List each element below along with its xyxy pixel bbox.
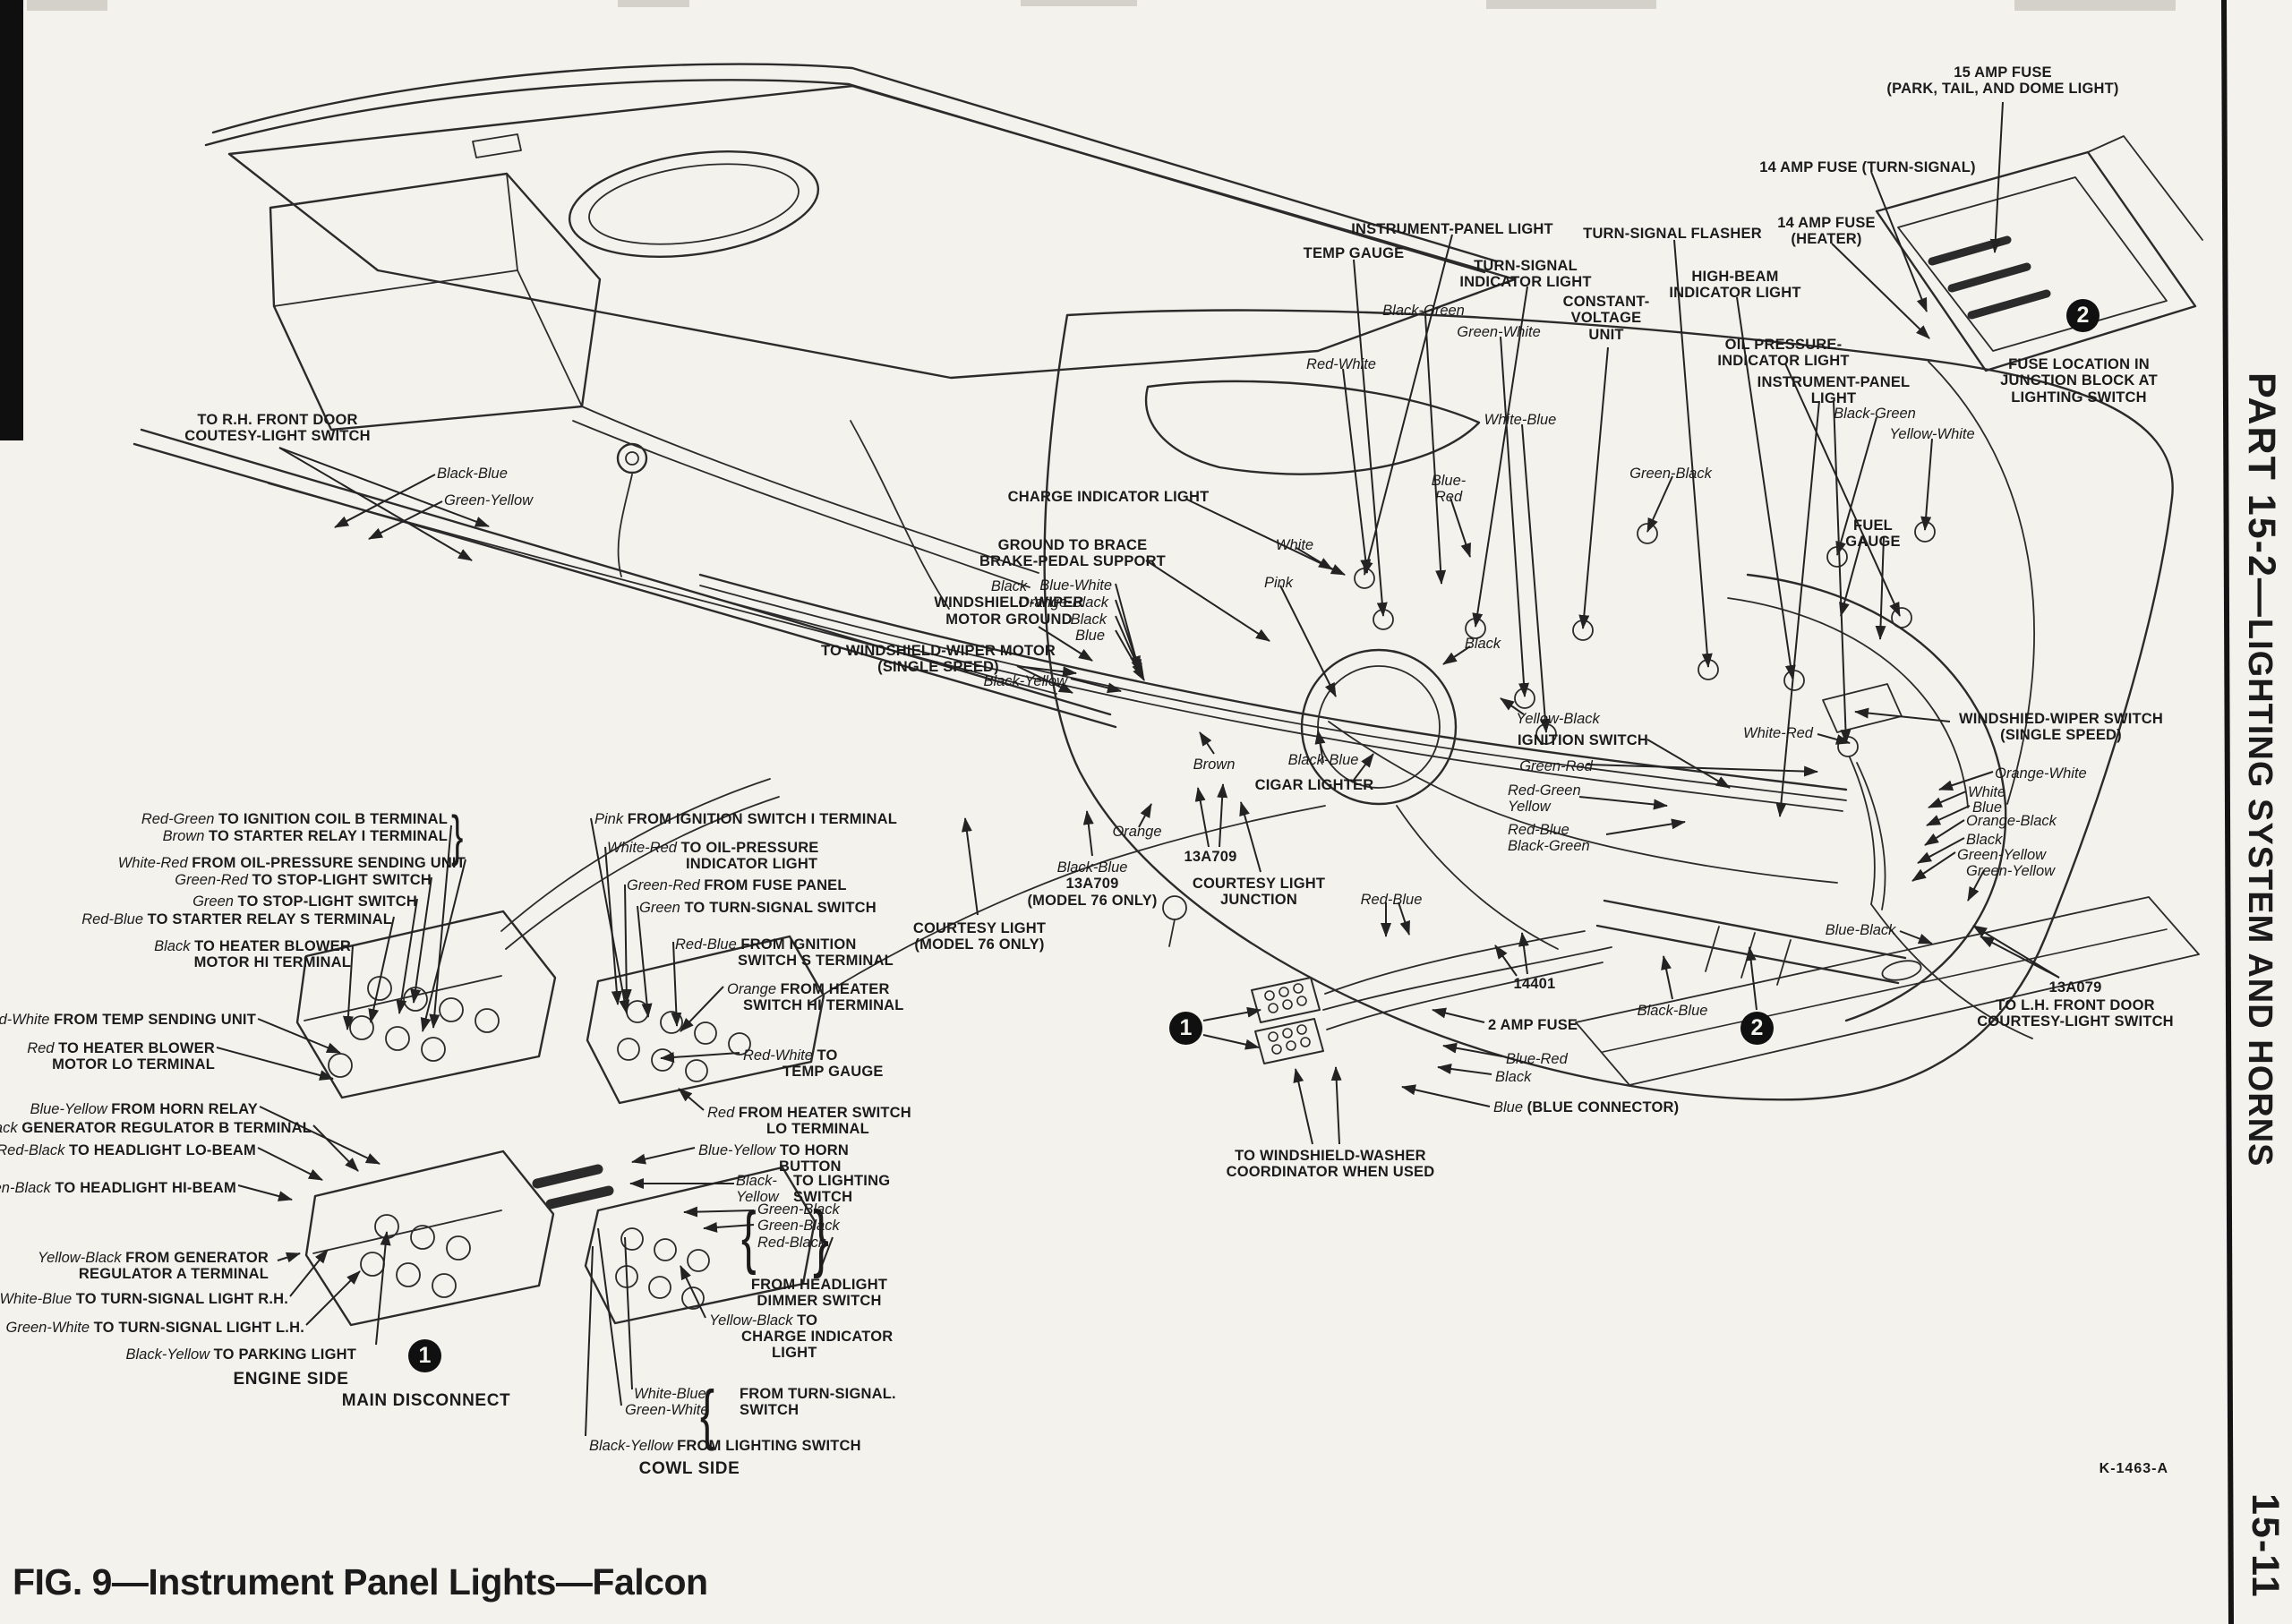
cowl-yellow-black-charge-2: CHARGE INDICATOR xyxy=(741,1329,893,1345)
wire-yellow-black-c: Yellow-Black xyxy=(1516,711,1600,727)
callout-badge-1: 1 xyxy=(1169,1012,1202,1045)
wire-black-blue-b: Black-Blue xyxy=(1638,1003,1708,1019)
cowl-blue-yellow-horn: Blue-Yellow TO HORN xyxy=(698,1142,849,1158)
engine-side-heading: ENGINE SIDE xyxy=(233,1370,348,1389)
turn-signal-indicator-light: TURN-SIGNALINDICATOR LIGHT xyxy=(1459,258,1591,291)
wire-yellow-white: Yellow-White xyxy=(1889,426,1974,442)
wire-green-yellow-left: Green-Yellow xyxy=(444,492,533,509)
part-13a709: 13A709 xyxy=(1184,849,1237,865)
wire-green-red-c: Green-Red xyxy=(1519,758,1593,774)
eng-black-heater-hi: Black TO HEATER BLOWERMOTOR HI TERMINAL xyxy=(154,938,351,971)
eng-red-black-lo-beam: Red-Black TO HEADLIGHT LO-BEAM xyxy=(0,1142,256,1158)
cowl-white-red-oil: White-Red TO OIL-PRESSURE xyxy=(607,840,819,856)
wire-green-yellow-r1: Green-Yellow xyxy=(1957,847,2046,863)
wire-red-blue-c: Red-Blue xyxy=(1361,892,1423,908)
wire-green-black-1: Green-Black xyxy=(1629,466,1712,482)
wire-blue-c1: Blue xyxy=(1075,628,1105,644)
ground-to-brace: GROUND TO BRACEBRAKE-PEDAL SUPPORT xyxy=(979,537,1166,570)
oil-pressure-indicator-light: OIL PRESSURE-INDICATOR LIGHT xyxy=(1717,337,1849,370)
fuel-gauge: FUELGAUGE xyxy=(1845,517,1901,551)
from-turn-signal-switch: FROM TURN-SIGNAL. xyxy=(740,1386,896,1402)
main-disconnect-heading: MAIN DISCONNECT xyxy=(342,1391,510,1410)
lh-front-door-courtesy-switch: TO L.H. FRONT DOORCOURTESY-LIGHT SWITCH xyxy=(1977,997,2174,1030)
from-turn-signal-switch-2: SWITCH xyxy=(740,1402,799,1418)
wire-green-white-1: Green-White xyxy=(1457,324,1541,340)
model-76-block: Black-Blue13A709(MODEL 76 ONLY) xyxy=(1027,859,1157,909)
label-layer: 15 AMP FUSE(PARK, TAIL, AND DOME LIGHT)1… xyxy=(0,0,2292,1624)
eng-black-gen-reg-b: Black GENERATOR REGULATOR B TERMINAL xyxy=(0,1120,312,1136)
eng-blue-yellow-horn-relay: Blue-Yellow FROM HORN RELAY xyxy=(30,1101,258,1117)
callout-badge-2: 2 xyxy=(2066,299,2100,332)
ignition-switch: IGNITION SWITCH xyxy=(1518,732,1648,748)
wire-orange-black-r: Orange-Black xyxy=(1966,813,2057,829)
eng-red-white-temp-sending: Red-White FROM TEMP SENDING UNIT xyxy=(0,1012,256,1028)
cowl-red-heater-lo-2: LO TERMINAL xyxy=(766,1121,869,1137)
washer-coordinator: TO WINDSHIELD-WASHERCOORDINATOR WHEN USE… xyxy=(1227,1148,1435,1181)
cowl-orange-heater-hi-2: SWITCH HI TERMINAL xyxy=(743,997,904,1013)
manual-page: 15 AMP FUSE(PARK, TAIL, AND DOME LIGHT)1… xyxy=(0,0,2292,1624)
wire-red-green-yellow: Red-GreenYellow xyxy=(1508,782,1581,816)
wire-black-c2: Black xyxy=(1465,636,1501,652)
wire-blue-black-r: Blue-Black xyxy=(1826,922,1896,938)
wire-black-blue-left: Black-Blue xyxy=(437,466,508,482)
callout-badge-1: 1 xyxy=(408,1339,441,1372)
cowl-red-blue-ignition-s: Red-Blue FROM IGNITION xyxy=(675,936,856,953)
wire-blue-red-1: Blue-Red xyxy=(1432,473,1467,506)
eng-green-black-hi-beam: Green-Black TO HEADLIGHT HI-BEAM xyxy=(0,1180,236,1196)
wire-black-blue-c: Black-Blue xyxy=(1288,752,1359,768)
high-beam-indicator-light: HIGH-BEAMINDICATOR LIGHT xyxy=(1669,269,1800,302)
cowl-black-yellow-from-lighting: Black-Yellow FROM LIGHTING SWITCH xyxy=(589,1438,861,1454)
wire-red-white-1: Red-White xyxy=(1306,356,1376,372)
wire-red-blue-black-green: Red-BlueBlack-Green xyxy=(1508,822,1590,855)
cowl-white-blue-ts: White-Blue xyxy=(634,1386,706,1402)
courtesy-light-junction: COURTESY LIGHTJUNCTION xyxy=(1193,876,1325,909)
fuse-15-amp: 15 AMP FUSE(PARK, TAIL, AND DOME LIGHT) xyxy=(1886,64,2118,98)
eng-green-white-turn-lh: Green-White TO TURN-SIGNAL LIGHT L.H. xyxy=(5,1320,304,1336)
wire-black-b: Black xyxy=(1495,1069,1531,1085)
wire-pink-1: Pink xyxy=(1264,575,1293,591)
wire-blue-connector: Blue (BLUE CONNECTOR) xyxy=(1493,1099,1679,1115)
instrument-panel-light-1: INSTRUMENT-PANEL LIGHT xyxy=(1351,221,1553,237)
wire-brown: Brown xyxy=(1193,756,1236,773)
eng-green-stop-light: Green TO STOP-LIGHT SWITCH xyxy=(192,893,417,910)
turn-signal-flasher: TURN-SIGNAL FLASHER xyxy=(1583,226,1762,242)
eng-red-heater-lo: Red TO HEATER BLOWERMOTOR LO TERMINAL xyxy=(27,1040,215,1073)
brace-lighting-right: } xyxy=(813,1196,829,1280)
eng-black-yellow-parking: Black-Yellow TO PARKING LIGHT xyxy=(126,1346,356,1363)
cowl-green-turn-signal: Green TO TURN-SIGNAL SWITCH xyxy=(639,900,877,916)
page-number: 15-11 xyxy=(2243,1493,2287,1599)
wire-black-r: Black xyxy=(1966,832,2002,848)
eng-red-blue-starter-relay-s: Red-Blue TO STARTER RELAY S TERMINAL xyxy=(81,911,392,927)
eng-yellow-black-gen-reg-a: Yellow-Black FROM GENERATORREGULATOR A T… xyxy=(38,1250,269,1283)
figure-title: FIG. 9—Instrument Panel Lights—Falcon xyxy=(13,1561,708,1603)
part-heading-title: LIGHTING SYSTEM AND HORNS xyxy=(2241,619,2279,1167)
eng-white-red-oil-pressure: White-Red FROM OIL-PRESSURE SENDING UNIT xyxy=(118,855,466,871)
temp-gauge: TEMP GAUGE xyxy=(1304,245,1405,261)
windshield-wiper-switch: WINDSHIED-WIPER SWITCH(SINGLE SPEED) xyxy=(1959,711,2163,744)
wire-blue-white: Blue-White xyxy=(1039,577,1112,594)
eng-white-blue-turn-rh: White-Blue TO TURN-SIGNAL LIGHT R.H. xyxy=(0,1291,288,1307)
cowl-pink-ignition-i: Pink FROM IGNITION SWITCH I TERMINAL xyxy=(594,811,897,827)
wire-white-r: White xyxy=(1968,784,2005,800)
cowl-red-white-temp: Red-White TO xyxy=(743,1047,838,1064)
wire-white-1: White xyxy=(1276,537,1313,553)
cowl-orange-heater-hi: Orange FROM HEATER xyxy=(727,981,890,997)
cowl-green-red-fuse-panel: Green-Red FROM FUSE PANEL xyxy=(627,877,847,893)
charge-indicator-light: CHARGE INDICATOR LIGHT xyxy=(1008,489,1210,505)
wire-orange-c: Orange xyxy=(1112,824,1161,840)
wire-black-c1: Black xyxy=(1071,611,1107,628)
wire-blue-red-b: Blue-Red xyxy=(1506,1051,1568,1067)
cowl-yellow-black-charge-3: LIGHT xyxy=(772,1345,817,1361)
wire-white-blue-1: White-Blue xyxy=(1484,412,1557,428)
cowl-red-blue-ignition-s-2: SWITCH S TERMINAL xyxy=(738,953,894,969)
eng-green-red-stop-light: Green-Red TO STOP-LIGHT SWITCH xyxy=(175,872,432,888)
cowl-yellow-black-charge: Yellow-Black TO xyxy=(709,1312,817,1329)
constant-voltage-unit: CONSTANT-VOLTAGEUNIT xyxy=(1563,294,1650,343)
wire-orange-white-r: Orange-White xyxy=(1995,765,2087,782)
fuse-14-amp-heater: 14 AMP FUSE(HEATER) xyxy=(1777,215,1875,248)
eng-brown-starter-relay-i: Brown TO STARTER RELAY I TERMINAL xyxy=(163,828,448,844)
part-14401: 14401 xyxy=(1514,976,1556,992)
cowl-red-white-temp-2: TEMP GAUGE xyxy=(783,1064,884,1080)
cowl-white-red-oil-2: INDICATOR LIGHT xyxy=(686,856,817,872)
plate-code: K-1463-A xyxy=(2100,1461,2168,1477)
wire-black-yellow-c: Black-Yellow xyxy=(983,673,1067,689)
wire-green-yellow-r2: Green-Yellow xyxy=(1966,863,2055,879)
instrument-panel-light-2: INSTRUMENT-PANELLIGHT xyxy=(1757,374,1911,407)
part-13a079: 13A079 xyxy=(2049,979,2102,996)
cowl-green-white-ts: Green-White xyxy=(625,1402,709,1418)
wire-white-red-c: White-Red xyxy=(1743,725,1813,741)
to-wiper-motor: TO WINDSHIELD-WIPER MOTOR(SINGLE SPEED) xyxy=(821,643,1056,676)
fuse-14-amp-turn-signal: 14 AMP FUSE (TURN-SIGNAL) xyxy=(1759,159,1976,175)
cowl-red-heater-lo: Red FROM HEATER SWITCH xyxy=(707,1105,911,1121)
cowl-side-heading: COWL SIDE xyxy=(639,1459,740,1478)
courtesy-light-model-76: COURTESY LIGHT(MODEL 76 ONLY) xyxy=(913,920,1046,953)
brace-lighting-left: { xyxy=(741,1198,757,1276)
cigar-lighter: CIGAR LIGHTER xyxy=(1255,777,1374,793)
callout-badge-2: 2 xyxy=(1740,1012,1774,1045)
part-number: PART 15-2— xyxy=(2240,372,2283,619)
wire-black-green-2: Black-Green xyxy=(1834,406,1916,422)
margin-heading: PART 15-2—LIGHTING SYSTEM AND HORNS xyxy=(2239,372,2283,1167)
wire-black-green-1: Black-Green xyxy=(1382,303,1465,319)
fuse-location-note: FUSE LOCATION INJUNCTION BLOCK ATLIGHTIN… xyxy=(2000,356,2158,406)
eng-red-green-ignition-coil: Red-Green TO IGNITION COIL B TERMINAL xyxy=(141,811,448,827)
from-headlight-dimmer: FROM HEADLIGHTDIMMER SWITCH xyxy=(751,1277,887,1310)
rh-front-door-courtesy-switch: TO R.H. FRONT DOORCOUTESY-LIGHT SWITCH xyxy=(184,412,371,445)
fuse-2-amp: 2 AMP FUSE xyxy=(1488,1017,1578,1033)
wire-orange-black-c: Orange-Black xyxy=(1018,594,1108,611)
